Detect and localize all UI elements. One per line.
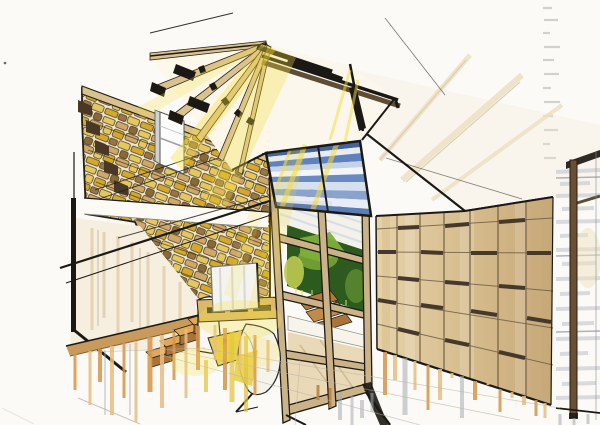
sketch-canvas [0,0,600,425]
door-frame-post [570,160,577,418]
architectural-sketch [0,0,600,425]
paper-speck [4,62,7,65]
